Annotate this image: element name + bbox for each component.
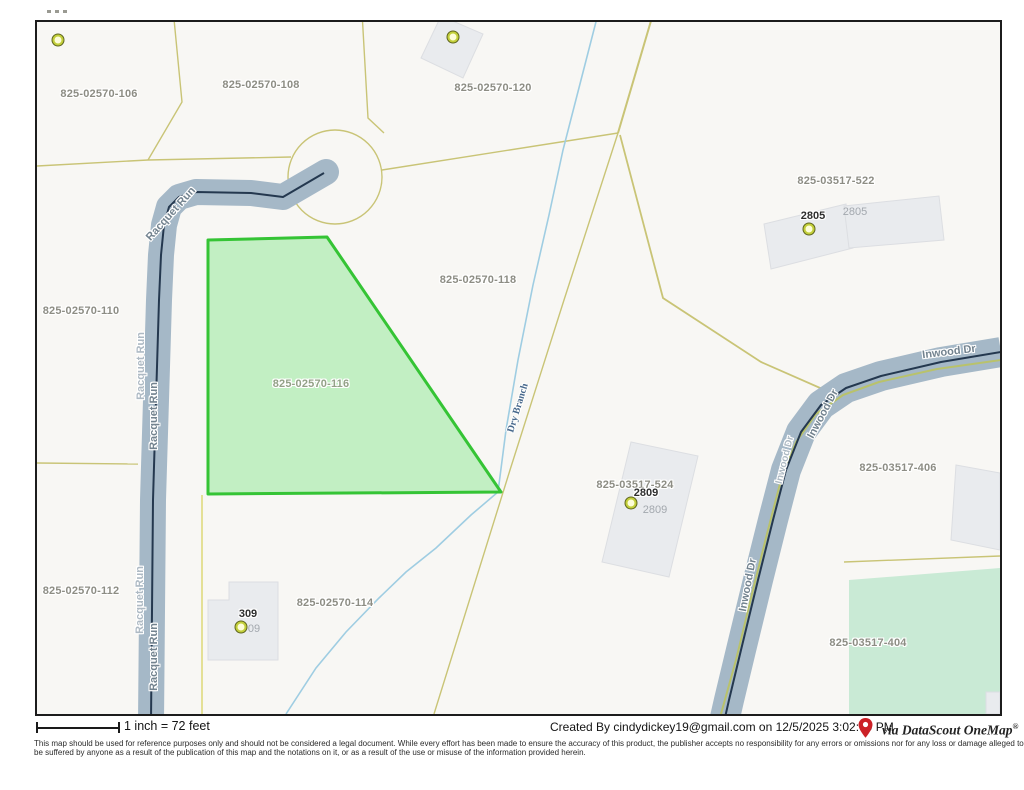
parcel-point-dot bbox=[804, 224, 815, 235]
disclaimer-line-1: This map should be used for reference pu… bbox=[34, 739, 1024, 748]
house-label-309-bold: 309 bbox=[239, 608, 257, 620]
parcel-point-dot bbox=[236, 622, 247, 633]
map-canvas[interactable]: 825-02570-106 825-02570-108 825-02570-12… bbox=[35, 20, 1002, 716]
parcel-label-110: 825-02570-110 bbox=[43, 305, 120, 317]
road-label-racquet-run-3: Racquet Run bbox=[148, 382, 160, 450]
parcel-point-dot bbox=[626, 498, 637, 509]
building-2805-b bbox=[844, 196, 944, 248]
map-pin-icon bbox=[858, 718, 873, 738]
building-right-edge bbox=[951, 465, 1000, 550]
created-by-text: Created By cindydickey19@gmail.com on 12… bbox=[550, 720, 894, 734]
house-label-2805-gray: 2805 bbox=[843, 206, 867, 218]
parcel-label-114: 825-02570-114 bbox=[297, 597, 374, 609]
via-datascout-label: via DataScout OneMap bbox=[882, 723, 1013, 738]
parcel-point-dot bbox=[448, 32, 459, 43]
parcel-label-116: 825-02570-116 bbox=[273, 378, 350, 390]
parcel-label-522: 825-03517-522 bbox=[797, 175, 874, 187]
house-label-2809-bold: 2809 bbox=[634, 487, 658, 499]
registered-mark: ® bbox=[1013, 722, 1019, 731]
parcel-label-406: 825-03517-406 bbox=[859, 462, 936, 474]
parcel-label-108: 825-02570-108 bbox=[222, 79, 299, 91]
parcel-label-112: 825-02570-112 bbox=[43, 585, 120, 597]
road-label-racquet-run-5: Racquet Run bbox=[148, 623, 160, 691]
disclaimer-line-2: be suffered by anyone as a result of the… bbox=[34, 748, 1024, 757]
road-label-racquet-run-2: Racquet Run bbox=[135, 332, 147, 400]
via-datascout-text: via DataScout OneMap® bbox=[882, 722, 1019, 739]
parcel-label-106: 825-02570-106 bbox=[60, 88, 137, 100]
house-label-2805-bold: 2805 bbox=[801, 210, 825, 222]
disclaimer-text: This map should be used for reference pu… bbox=[34, 739, 1024, 757]
house-label-2809-gray: 2809 bbox=[643, 504, 667, 516]
parcel-label-120: 825-02570-120 bbox=[454, 82, 531, 94]
building-top bbox=[421, 22, 483, 78]
clipped-label-fragment bbox=[47, 10, 67, 13]
house-label-309-gray: 09 bbox=[248, 623, 260, 635]
parcel-point-dot bbox=[53, 35, 64, 46]
map-layers bbox=[37, 22, 1000, 714]
building-bottom-right bbox=[986, 692, 1000, 714]
parcel-label-404: 825-03517-404 bbox=[829, 637, 906, 649]
datascout-map-page: { "map": { "parcels": { "p106": "825-025… bbox=[0, 0, 1024, 790]
road-label-racquet-run-4: Racquet Run bbox=[134, 566, 146, 634]
parcel-label-118: 825-02570-118 bbox=[440, 274, 517, 286]
scale-text: 1 inch = 72 feet bbox=[124, 719, 210, 733]
